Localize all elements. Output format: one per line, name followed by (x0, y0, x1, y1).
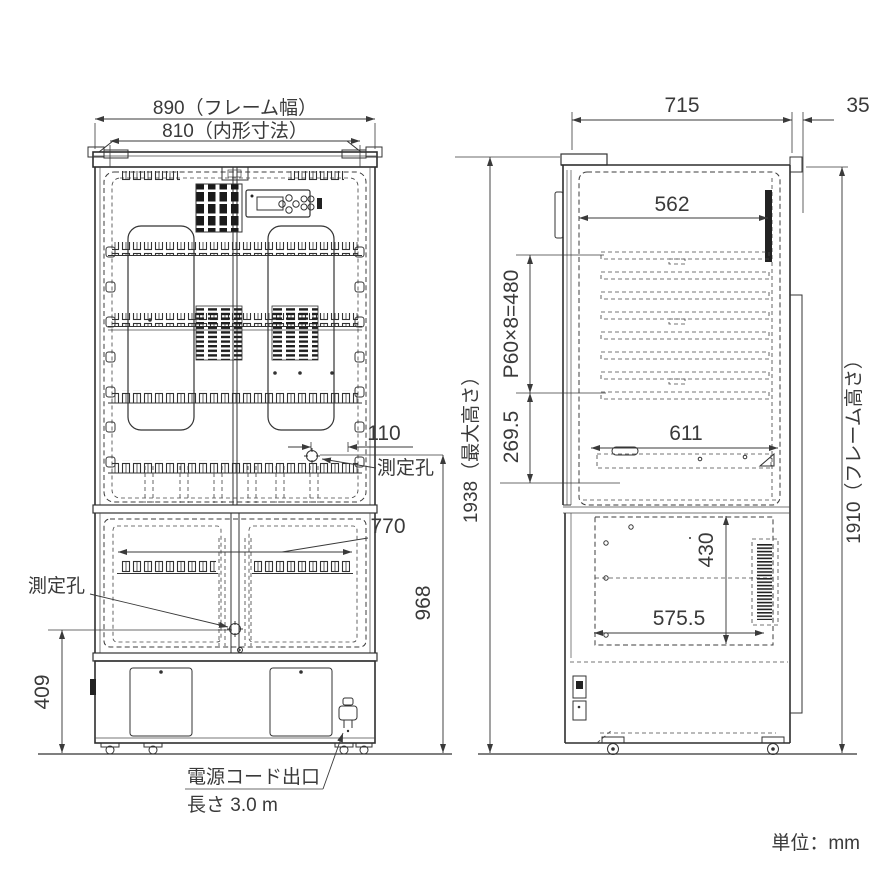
front-casters (101, 743, 372, 754)
fin-block-icon (272, 306, 318, 360)
dim-inner-depth-top: 562 (654, 193, 689, 216)
label-power-cord-length: 長さ 3.0 m (187, 795, 278, 816)
dimensions-front (48, 119, 443, 789)
side-view (555, 154, 802, 755)
front-view (88, 141, 382, 754)
dim-machine-room-depth: 575.5 (653, 607, 706, 630)
side-casters (602, 737, 784, 755)
door-handle (555, 192, 563, 238)
dim-rear-clearance: 35 (846, 94, 869, 117)
top-cover (99, 141, 361, 152)
labels: 890（フレーム幅） 810（内形寸法） 715 35 562 P60×8=48… (28, 94, 870, 854)
unit-note: 単位：mm (771, 832, 860, 854)
dim-frame-width: 890（フレーム幅） (153, 97, 317, 119)
rear-cover (790, 295, 802, 713)
power-switch (573, 676, 586, 720)
shelves-side (601, 252, 769, 399)
control-panel (246, 190, 322, 217)
dim-upper-hole-height: 968 (412, 585, 435, 620)
dim-frame-height: 1910（フレーム高さ） (843, 350, 865, 544)
dim-machine-room-height: 430 (695, 532, 718, 567)
side-top-cap (561, 154, 607, 165)
bottom-deck (597, 447, 774, 468)
machine-base (95, 661, 375, 743)
label-measurement-hole-lower: 測定孔 (28, 575, 85, 597)
condenser-icon (757, 544, 772, 620)
power-cord-outlet-icon (339, 698, 357, 732)
drawing-page: 890（フレーム幅） 810（内形寸法） 715 35 562 P60×8=48… (0, 0, 880, 880)
dim-lower-opening-width: 770 (370, 515, 405, 538)
dim-hole-offset: 110 (367, 422, 400, 445)
base-panel-right (270, 668, 332, 736)
shelf-rail-back (765, 190, 772, 262)
dim-inner-width: 810（内形寸法） (162, 120, 308, 142)
label-power-cord-exit: 電源コード出口 (187, 766, 320, 788)
dim-depth: 715 (664, 94, 699, 117)
dim-shelf-depth: 611 (669, 422, 702, 445)
vent-grille-icon (196, 184, 242, 232)
lower-door-right (249, 526, 357, 642)
dim-lower-clearance: 269.5 (500, 411, 523, 464)
measurement-hole-lower-icon (227, 621, 243, 653)
dim-base-height: 409 (31, 674, 54, 709)
dim-shelf-pitch: P60×8=480 (500, 270, 523, 379)
label-measurement-hole-upper: 測定孔 (377, 457, 434, 479)
clip-strip (122, 171, 180, 181)
clip-strip (288, 171, 344, 181)
control-buttons-icon (279, 195, 322, 213)
fin-block-icon (196, 306, 242, 360)
base-panel-left (130, 668, 192, 736)
lower-door-left (113, 526, 221, 642)
dim-max-height: 1938（最大高さ） (460, 367, 482, 523)
technical-drawing: 890（フレーム幅） 810（内形寸法） 715 35 562 P60×8=48… (0, 0, 880, 880)
